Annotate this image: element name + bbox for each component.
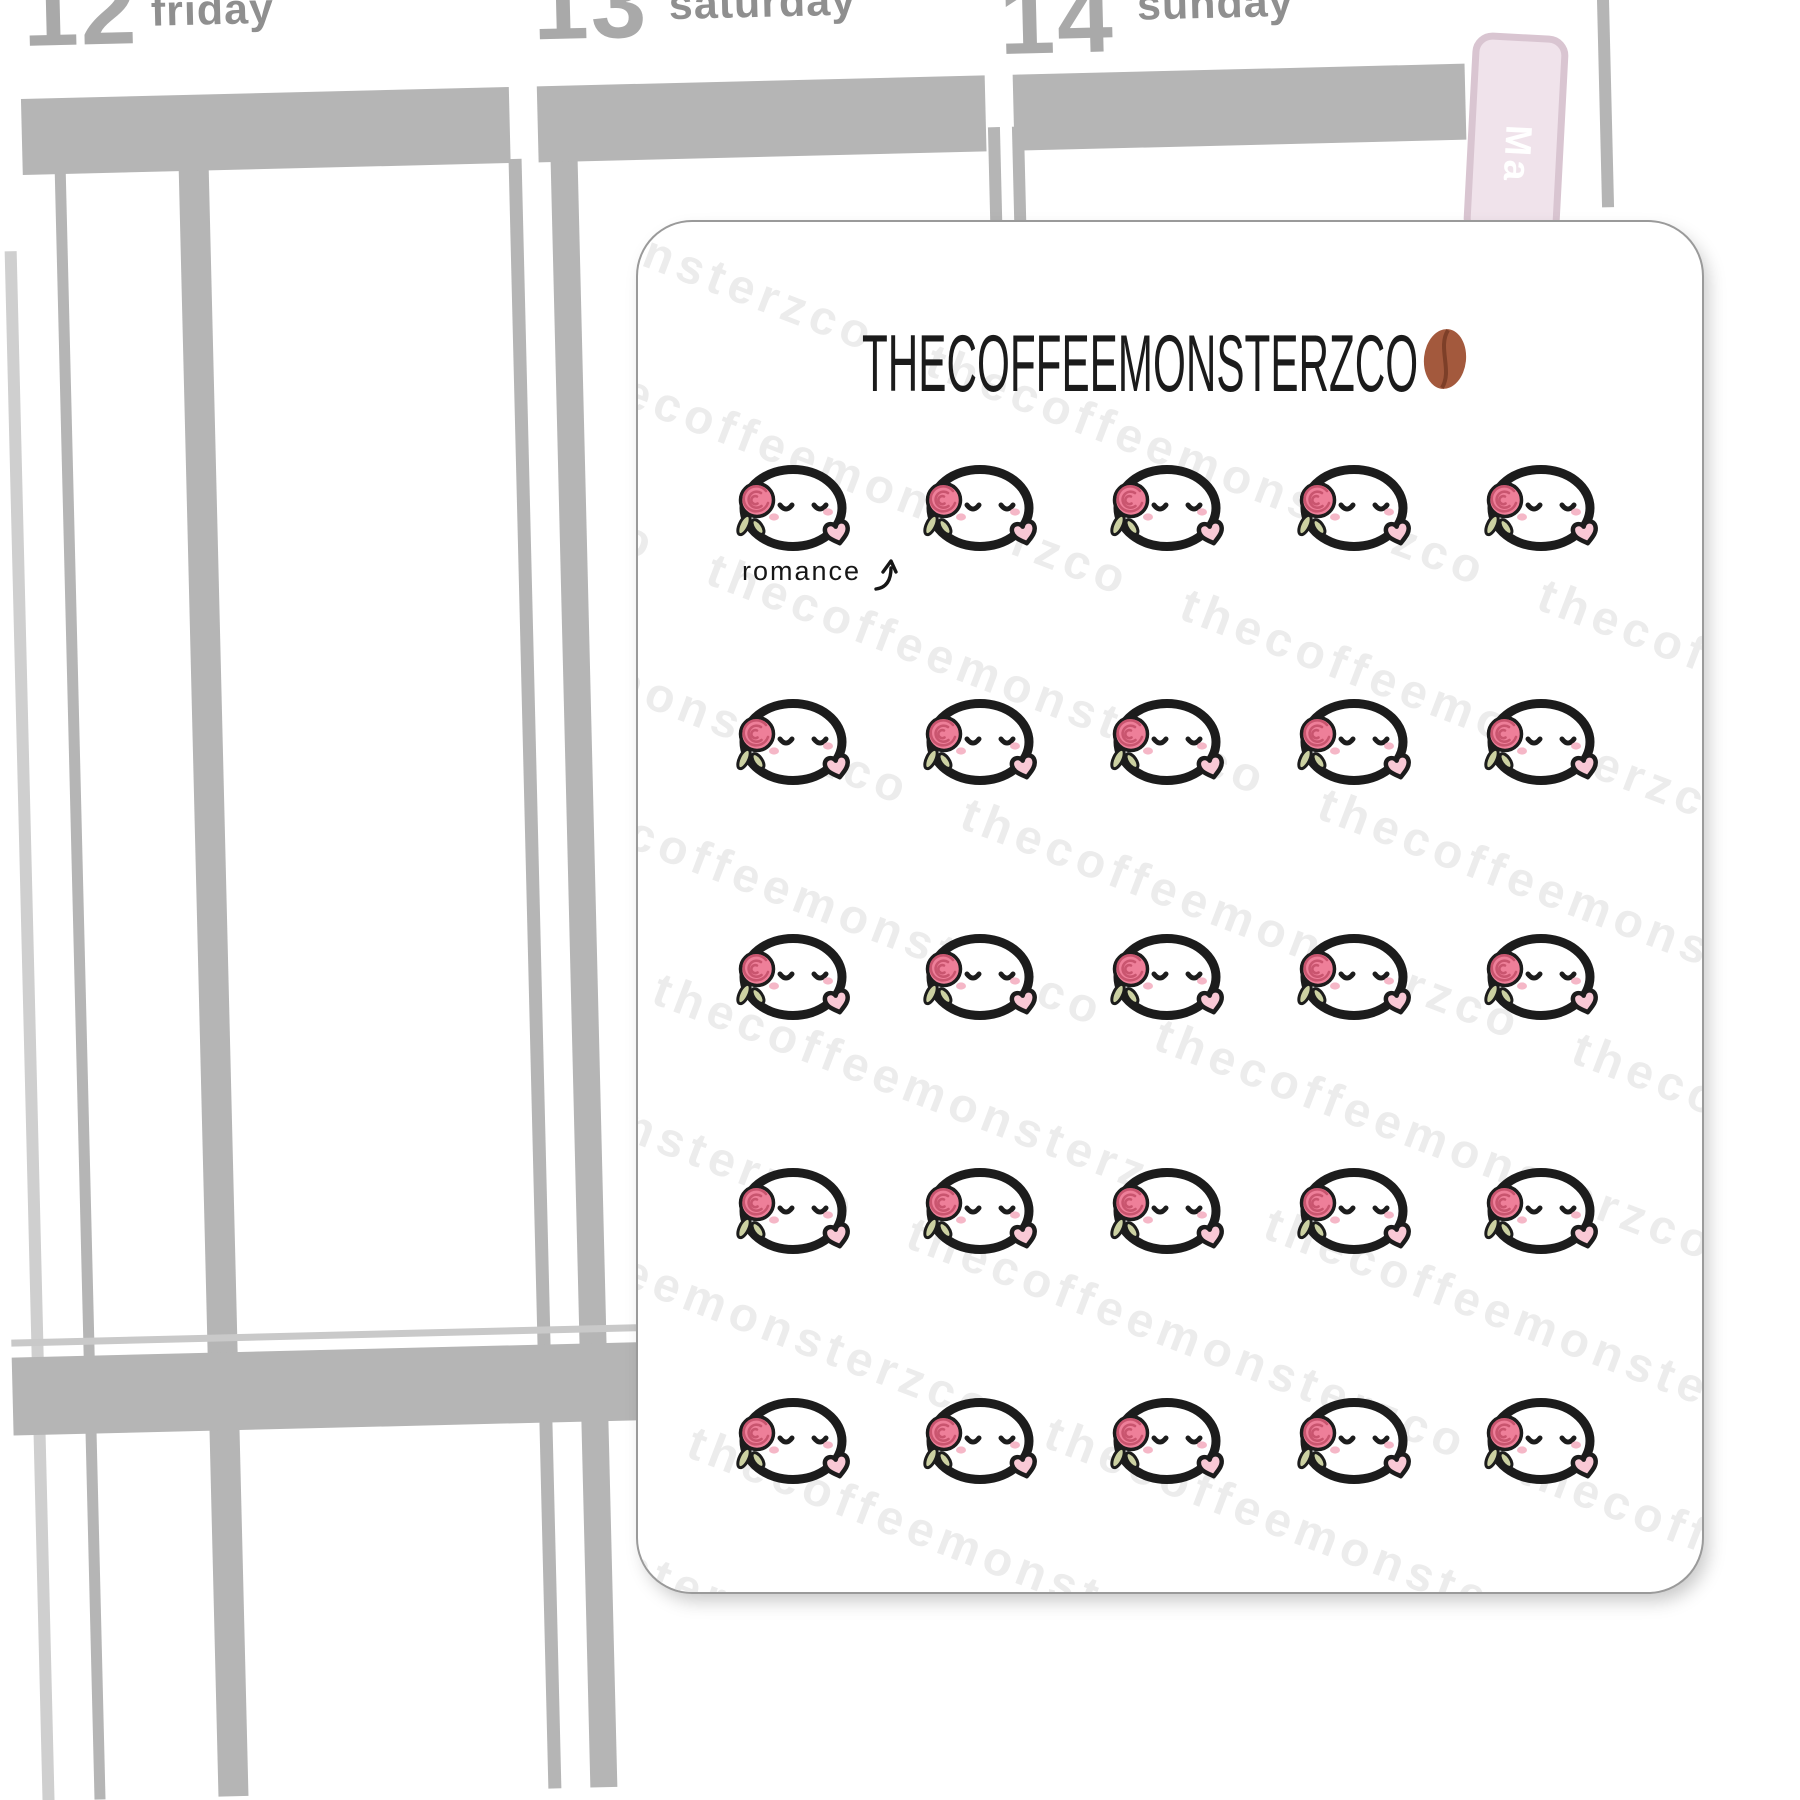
week-header-bar — [1013, 64, 1467, 151]
product-photo: 12 friday 13 saturday 14 sunday Ma theco… — [0, 0, 1800, 1800]
heart-icon — [1198, 520, 1225, 546]
romance-sticker — [1288, 1157, 1416, 1261]
heart-icon — [824, 1453, 851, 1479]
heart-icon — [1385, 989, 1412, 1015]
day-name: saturday — [668, 0, 856, 30]
rose-icon — [1115, 1417, 1148, 1450]
heart-icon — [1572, 989, 1599, 1015]
heart-icon — [1011, 520, 1038, 546]
rose-icon — [1489, 718, 1522, 751]
sticker-sheet: thecoffeemonsterzco thecoffeemonsterzco … — [638, 222, 1702, 1592]
sticker-name-text: romance — [742, 556, 861, 587]
romance-sticker — [727, 923, 855, 1027]
romance-sticker — [1475, 1157, 1603, 1261]
rose-icon — [1115, 484, 1148, 517]
rose-icon — [1115, 1187, 1148, 1220]
heart-icon — [1385, 754, 1412, 780]
rose-icon — [1115, 718, 1148, 751]
romance-sticker — [1101, 688, 1229, 792]
romance-sticker — [1101, 1157, 1229, 1261]
romance-sticker — [914, 688, 1042, 792]
heart-icon — [824, 1223, 851, 1249]
day-number: 12 — [21, 0, 139, 70]
rose-icon — [1302, 1417, 1335, 1450]
rose-icon — [1489, 1417, 1522, 1450]
heart-icon — [1385, 520, 1412, 546]
rose-icon — [1489, 484, 1522, 517]
rose-icon — [928, 718, 961, 751]
romance-sticker — [914, 923, 1042, 1027]
heart-icon — [824, 989, 851, 1015]
rose-icon — [741, 953, 774, 986]
romance-sticker — [914, 1157, 1042, 1261]
day-name: sunday — [1136, 0, 1294, 31]
heart-icon — [1385, 1223, 1412, 1249]
rose-icon — [928, 1417, 961, 1450]
heart-icon — [1011, 1223, 1038, 1249]
romance-sticker — [1101, 1387, 1229, 1491]
romance-sticker — [1475, 923, 1603, 1027]
heart-icon — [1572, 520, 1599, 546]
heart-icon — [1572, 754, 1599, 780]
rose-icon — [741, 718, 774, 751]
heart-icon — [1011, 989, 1038, 1015]
rose-icon — [741, 1187, 774, 1220]
heart-icon — [824, 520, 851, 546]
romance-sticker — [1288, 1387, 1416, 1491]
coffee-bean-icon — [1422, 326, 1468, 392]
romance-sticker — [1288, 688, 1416, 792]
month-tab-label: Ma — [1495, 124, 1540, 186]
rose-icon — [741, 484, 774, 517]
romance-sticker — [1101, 454, 1229, 558]
romance-sticker — [1288, 454, 1416, 558]
rose-icon — [1302, 718, 1335, 751]
rose-icon — [1302, 1187, 1335, 1220]
rose-icon — [928, 1187, 961, 1220]
heart-icon — [1385, 1453, 1412, 1479]
romance-sticker — [1101, 923, 1229, 1027]
romance-sticker — [914, 1387, 1042, 1491]
rose-icon — [928, 484, 961, 517]
day-number: 13 — [531, 0, 649, 63]
romance-sticker — [1475, 454, 1603, 558]
grid-line — [988, 127, 1003, 237]
heart-icon — [1572, 1223, 1599, 1249]
romance-sticker — [727, 1157, 855, 1261]
grid-line — [509, 159, 562, 1789]
rose-icon — [1489, 1187, 1522, 1220]
rose-icon — [1115, 953, 1148, 986]
heart-icon — [1011, 1453, 1038, 1479]
rose-icon — [741, 1417, 774, 1450]
grid-line — [551, 157, 618, 1787]
rose-icon — [1302, 953, 1335, 986]
heart-icon — [824, 754, 851, 780]
heart-icon — [1198, 754, 1225, 780]
sticker-name-label: romance — [742, 556, 899, 592]
brand-title: THECOFFEEMONSTERZCO — [862, 317, 1418, 410]
romance-sticker — [1475, 688, 1603, 792]
day-name: friday — [150, 0, 274, 37]
heart-icon — [1198, 1453, 1225, 1479]
heart-icon — [1198, 1223, 1225, 1249]
romance-sticker — [1288, 923, 1416, 1027]
heart-icon — [1011, 754, 1038, 780]
grid-line — [178, 156, 248, 1796]
curved-up-arrow-icon — [871, 556, 899, 592]
rose-icon — [1302, 484, 1335, 517]
week-header-bar — [537, 75, 987, 162]
romance-sticker — [1475, 1387, 1603, 1491]
day-number: 14 — [998, 0, 1116, 78]
rose-icon — [1489, 953, 1522, 986]
grid-line — [5, 251, 55, 1800]
romance-sticker — [727, 1387, 855, 1491]
romance-sticker — [914, 454, 1042, 558]
romance-sticker — [727, 688, 855, 792]
grid-line — [54, 160, 105, 1800]
heart-icon — [1198, 989, 1225, 1015]
heart-icon — [1572, 1453, 1599, 1479]
rose-icon — [928, 953, 961, 986]
romance-sticker — [727, 454, 855, 558]
month-tab: Ma — [1463, 32, 1570, 243]
week-header-bar — [21, 87, 511, 175]
grid-line — [1597, 0, 1614, 207]
